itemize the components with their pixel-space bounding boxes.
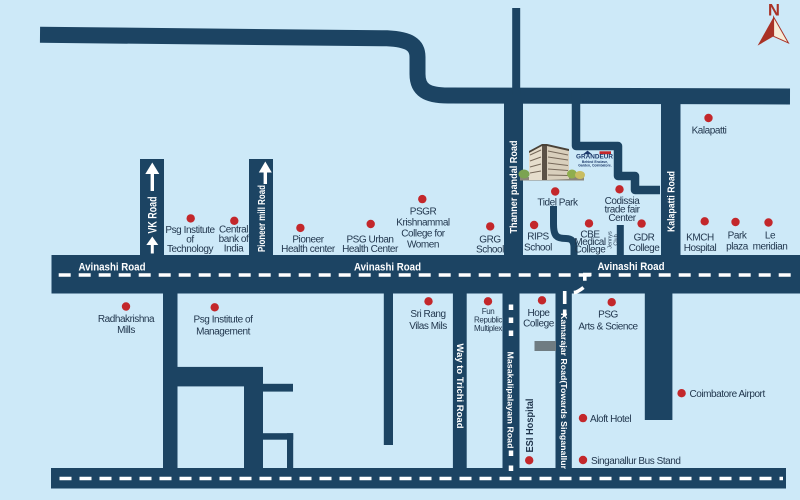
svg-text:Pioneer mill Road: Pioneer mill Road <box>257 185 268 252</box>
svg-text:KMCHHospital: KMCHHospital <box>684 233 717 255</box>
svg-text:Psg Institute ofManagement: Psg Institute ofManagement <box>194 315 254 338</box>
svg-text:Coimbatore Airport: Coimbatore Airport <box>690 389 766 400</box>
svg-text:Parkplaza: Parkplaza <box>726 231 749 253</box>
svg-text:Way to Trichi Road: Way to Trichi Road <box>455 344 465 429</box>
svg-text:GRGSchool: GRGSchool <box>476 235 504 256</box>
svg-text:Masakalipalayam Road: Masakalipalayam Road <box>506 352 516 449</box>
svg-text:Avinashi Road: Avinashi Road <box>354 262 421 274</box>
svg-text:Tidel Park: Tidel Park <box>537 198 579 209</box>
svg-text:Codissiatrade fairCenter: Codissiatrade fairCenter <box>605 196 641 224</box>
svg-text:VK Road: VK Road <box>148 197 160 234</box>
svg-text:PSG UrbanHealth Center: PSG UrbanHealth Center <box>342 235 399 256</box>
svg-text:Kamarajar Road(Towards Singana: Kamarajar Road(Towards Singanallur <box>559 313 568 469</box>
svg-text:Singanallur Bus Stand: Singanallur Bus Stand <box>591 456 681 467</box>
svg-text:Avinashi Road: Avinashi Road <box>79 262 146 274</box>
svg-text:Garden, Coimbatore.: Garden, Coimbatore. <box>578 163 612 167</box>
svg-text:Avinashi Road: Avinashi Road <box>598 261 665 273</box>
svg-text:Thanner pandal Road: Thanner pandal Road <box>509 141 520 234</box>
svg-text:Aloft Hotel: Aloft Hotel <box>590 414 631 425</box>
svg-text:Kalapatti Road: Kalapatti Road <box>666 171 677 232</box>
svg-text:RIPSSchool: RIPSSchool <box>524 232 552 254</box>
svg-text:Sri RangVilas Mils: Sri RangVilas Mils <box>409 309 447 332</box>
svg-text:ESI Hospital: ESI Hospital <box>525 398 536 452</box>
svg-text:Kalapatti: Kalapatti <box>692 126 727 137</box>
